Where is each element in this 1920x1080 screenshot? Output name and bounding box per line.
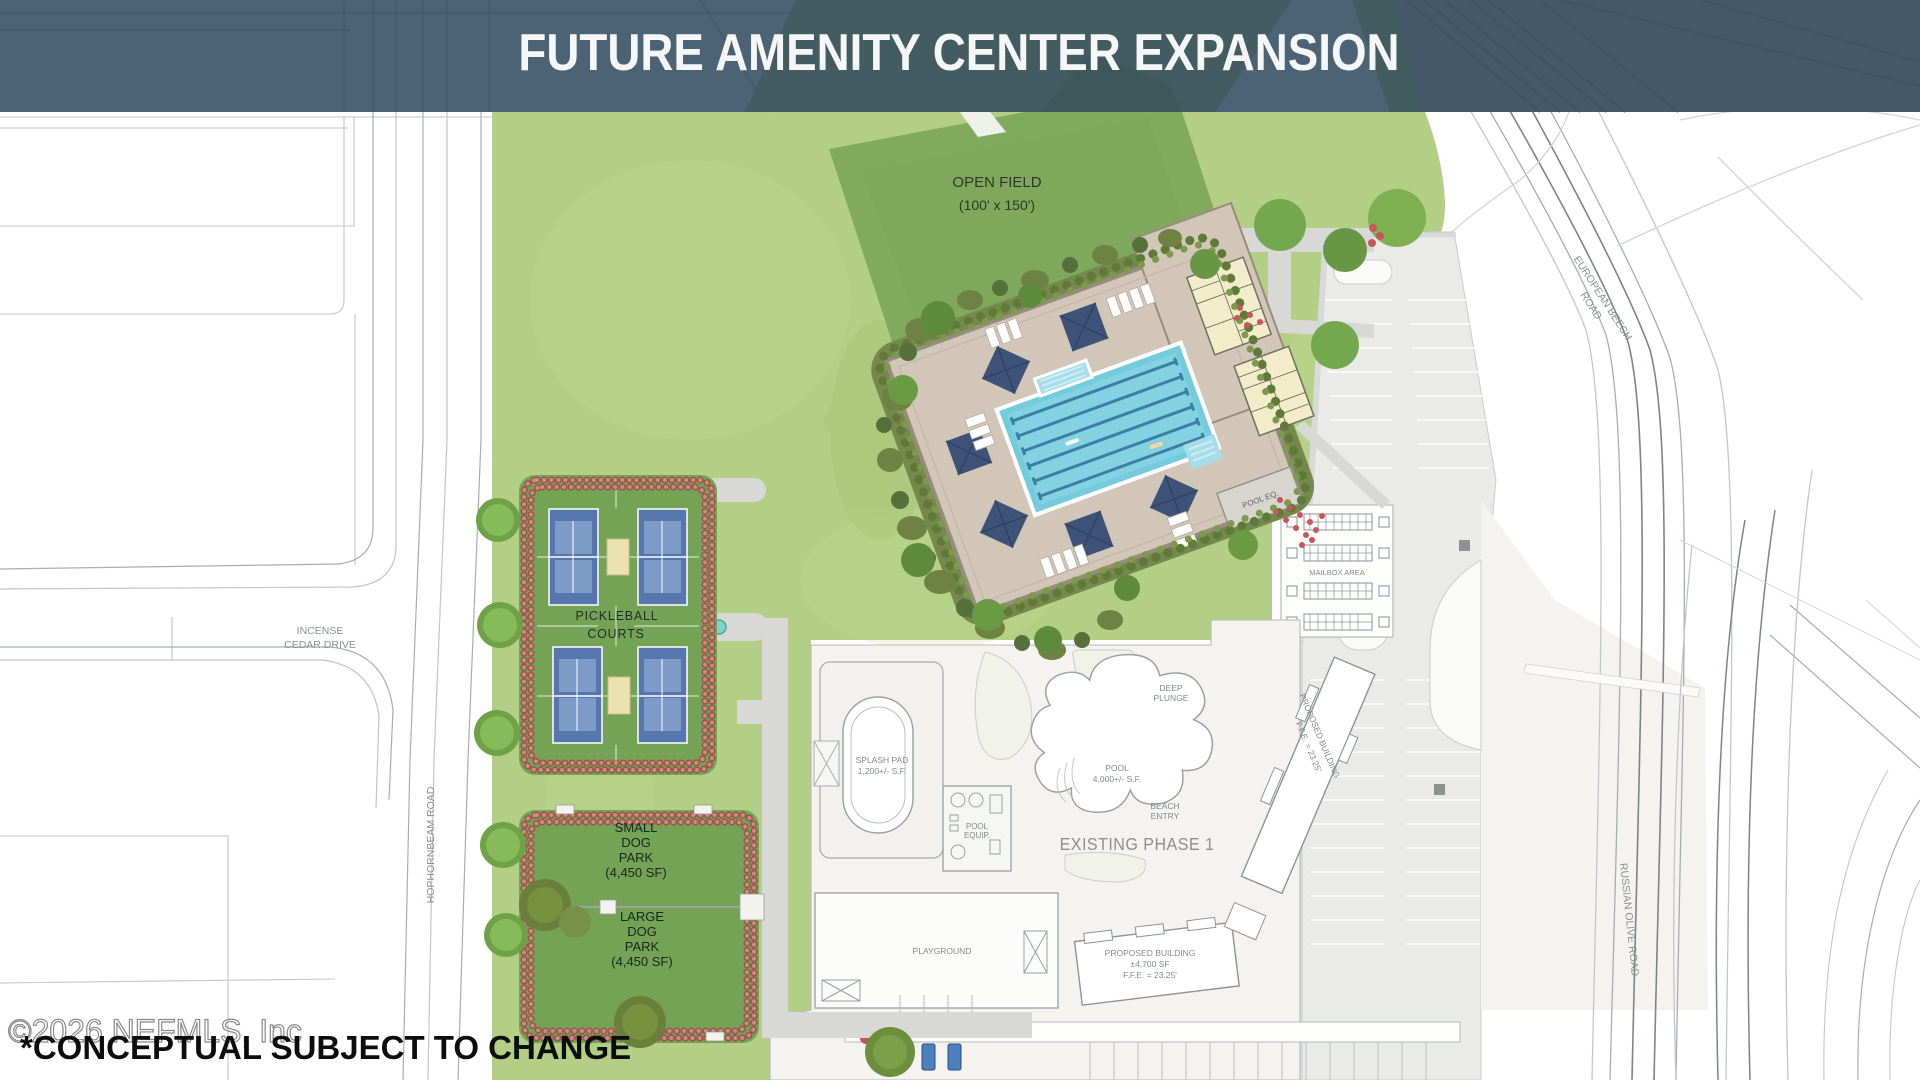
svg-text:PROPOSED BUILDING: PROPOSED BUILDING [1105, 948, 1196, 958]
svg-text:MAILBOX AREA: MAILBOX AREA [1309, 568, 1364, 577]
svg-text:PLUNGE: PLUNGE [1154, 693, 1189, 703]
svg-text:POOL: POOL [966, 822, 989, 831]
svg-text:1,200+/- S.F.: 1,200+/- S.F. [858, 766, 906, 776]
svg-text:FUTURE AMENITY CENTER EXPANSIO: FUTURE AMENITY CENTER EXPANSION [518, 24, 1399, 81]
svg-text:PICKLEBALL: PICKLEBALL [575, 609, 658, 623]
svg-text:HOPHORNBEAM ROAD: HOPHORNBEAM ROAD [425, 786, 437, 903]
svg-text:*CONCEPTUAL SUBJECT TO CHANGE: *CONCEPTUAL SUBJECT TO CHANGE [20, 1029, 631, 1066]
svg-text:PARK: PARK [619, 850, 654, 865]
svg-text:SMALL: SMALL [615, 820, 658, 835]
svg-text:ENTRY: ENTRY [1151, 811, 1180, 821]
svg-text:(4,450 SF): (4,450 SF) [605, 865, 666, 880]
svg-text:CEDAR DRIVE: CEDAR DRIVE [284, 639, 356, 651]
svg-text:PLAYGROUND: PLAYGROUND [913, 946, 972, 956]
svg-text:LARGE: LARGE [620, 909, 664, 924]
svg-text:EQUIP.: EQUIP. [964, 831, 990, 840]
svg-text:(100' x 150'): (100' x 150') [959, 197, 1035, 213]
svg-text:DOG: DOG [621, 835, 651, 850]
svg-text:SPLASH PAD: SPLASH PAD [856, 755, 909, 765]
svg-text:DEEP: DEEP [1159, 683, 1182, 693]
svg-text:EXISTING PHASE 1: EXISTING PHASE 1 [1060, 834, 1215, 854]
svg-text:F.F.E. = 23.25': F.F.E. = 23.25' [1123, 970, 1177, 980]
svg-text:COURTS: COURTS [587, 627, 644, 641]
svg-text:BEACH: BEACH [1150, 801, 1179, 811]
svg-text:PARK: PARK [625, 939, 660, 954]
svg-text:4,000+/- S.F.: 4,000+/- S.F. [1093, 774, 1141, 784]
svg-text:POOL: POOL [1105, 763, 1129, 773]
svg-text:OPEN FIELD: OPEN FIELD [952, 174, 1041, 191]
svg-text:DOG: DOG [627, 924, 657, 939]
svg-text:(4,450 SF): (4,450 SF) [611, 954, 672, 969]
svg-text:INCENSE: INCENSE [297, 625, 344, 637]
svg-text:±4,700 SF: ±4,700 SF [1130, 959, 1169, 969]
